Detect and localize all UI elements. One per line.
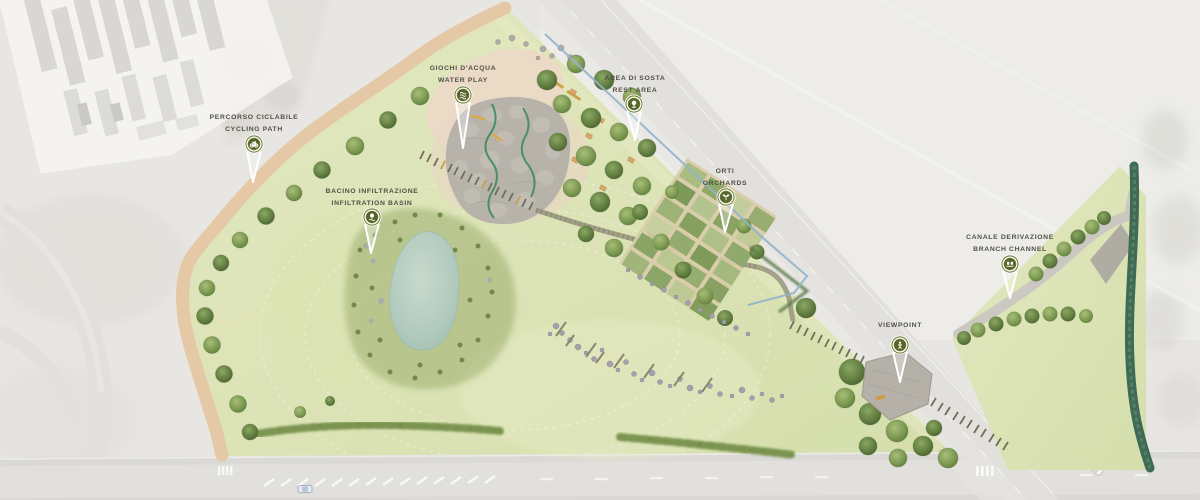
marker-label-cycling-path: PERCORSO CICLABILE CYCLING PATH	[210, 112, 299, 135]
label-line-it: VIEWPOINT	[878, 320, 922, 332]
label-line-it: PERCORSO CICLABILE	[210, 112, 299, 124]
label-line-en: WATER PLAY	[430, 75, 497, 87]
label-line-it: ORTI	[703, 166, 747, 178]
marker-pin-water-play[interactable]	[454, 86, 473, 149]
marker-label-infiltration-basin: BACINO INFILTRAZIONE INFILTRATION BASIN	[326, 186, 419, 209]
marker-label-branch-channel: CANALE DERIVAZIONE BRANCH CHANNEL	[966, 232, 1054, 255]
marker-pin-rest-area[interactable]	[625, 95, 644, 141]
marker-pin-cycling-path[interactable]	[245, 135, 264, 183]
label-line-it: AREA DI SOSTA	[605, 73, 666, 85]
label-line-en: ORCHARDS	[703, 178, 747, 190]
marker-label-orchards: ORTI ORCHARDS	[703, 166, 747, 189]
label-line-it: GIOCHI D'ACQUA	[430, 63, 497, 75]
marker-label-viewpoint: VIEWPOINT	[878, 320, 922, 332]
marker-pin-infiltration-basin[interactable]	[363, 208, 382, 254]
label-line-en: CYCLING PATH	[210, 124, 299, 136]
site-plan: PERCORSO CICLABILE CYCLING PATH GIOCHI D…	[0, 0, 1200, 500]
marker-label-rest-area: AREA DI SOSTA REST AREA	[605, 73, 666, 96]
marker-pin-orchards[interactable]	[717, 188, 736, 233]
marker-pin-viewpoint[interactable]	[891, 336, 910, 383]
marker-label-water-play: GIOCHI D'ACQUA WATER PLAY	[430, 63, 497, 86]
label-line-it: CANALE DERIVAZIONE	[966, 232, 1054, 244]
label-line-en: REST AREA	[605, 85, 666, 97]
label-line-en: BRANCH CHANNEL	[966, 244, 1054, 256]
marker-pin-branch-channel[interactable]	[1001, 255, 1020, 299]
label-line-en: INFILTRATION BASIN	[326, 198, 419, 210]
label-line-it: BACINO INFILTRAZIONE	[326, 186, 419, 198]
